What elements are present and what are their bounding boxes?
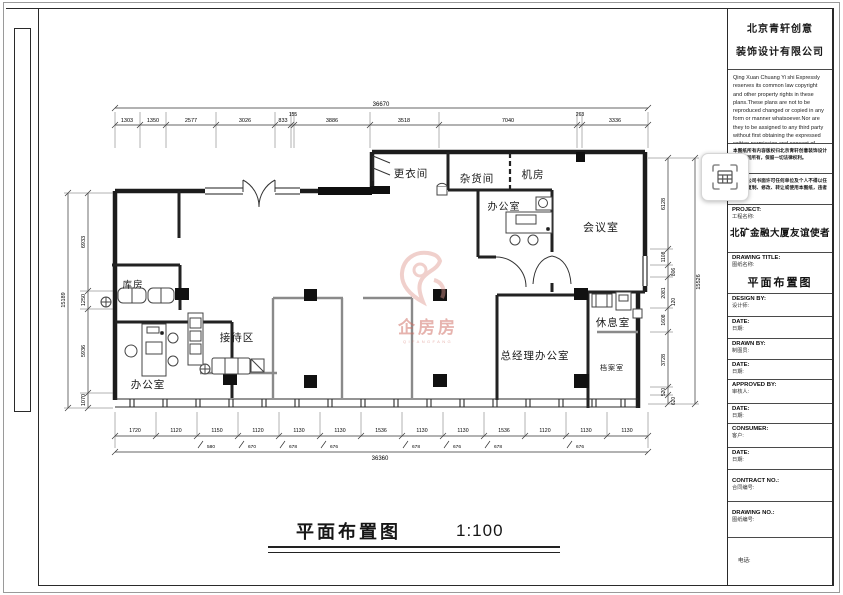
dim: 670 — [248, 444, 256, 450]
field-label-en: CONSUMER: — [728, 424, 832, 432]
field-label-zh: 日期: — [728, 456, 832, 463]
field-design-by: DESIGN BY: 设计师: — [728, 294, 832, 317]
dim: 833 — [278, 118, 287, 124]
bottom-window-band — [115, 399, 638, 407]
field-date-4: DATE: 日期: — [728, 448, 832, 470]
field-label-zh: 日期: — [728, 325, 832, 332]
dim-top-overall: 36670 — [373, 102, 390, 108]
field-drawing-no: DRAWING NO.: 图纸编号: — [728, 502, 832, 538]
dimension-values: 36670 1303 1350 2577 3026 833 155 3886 3… — [61, 102, 702, 462]
field-label-en: DESIGN BY: — [728, 294, 832, 302]
company-name-line1: 北京青轩创意 — [747, 20, 813, 35]
field-contract-no: CONTRACT NO.: 合同编号: — [728, 470, 832, 502]
dim-bottom-overall: 36360 — [372, 456, 389, 462]
field-label-en: DRAWN BY: — [728, 339, 832, 347]
field-drawing-title: DRAWING TITLE: 图纸名称: 平面布置图 — [728, 253, 832, 294]
field-date-1: DATE: 日期: — [728, 317, 832, 339]
dim: 1536 — [498, 428, 510, 434]
room-label: 档案室 — [600, 363, 624, 372]
dim: 5936 — [81, 345, 87, 357]
room-label: 会议室 — [583, 220, 619, 234]
company-name-block: 北京青轩创意 装饰设计有限公司 — [728, 8, 832, 70]
room-label: 办公室 — [488, 200, 521, 213]
furniture — [101, 183, 642, 376]
dim: 120 — [671, 298, 677, 307]
dim: 7040 — [502, 118, 514, 124]
dim: 620 — [671, 397, 677, 406]
dim: 1130 — [580, 428, 591, 434]
dim: 1120 — [539, 428, 550, 434]
dim: 676 — [330, 444, 338, 450]
dim: 6933 — [81, 236, 87, 248]
field-label-en: APPROVED BY: — [728, 380, 832, 388]
floor-plan-drawing: 更衣间 杂货间 机房 办公室 会议室 休息室 总经理办公室 档案室 接待区 库房… — [0, 0, 727, 595]
dim: 1608 — [661, 314, 667, 325]
sheet-inner-border-right — [833, 8, 834, 586]
dim: 1250 — [81, 294, 87, 306]
dim: 676 — [453, 444, 461, 450]
dim: 1120 — [252, 428, 263, 434]
dim: 806 — [671, 268, 677, 277]
field-label-zh: 图纸编号: — [728, 516, 832, 523]
dimension-lines — [64, 105, 699, 455]
field-label-zh: 工程名称: — [728, 213, 832, 220]
dim: 678 — [494, 444, 502, 450]
room-label: 休息室 — [596, 316, 631, 329]
dim: 676 — [576, 444, 584, 450]
company-name-line2: 装饰设计有限公司 — [736, 43, 824, 58]
field-phone: 电话: — [728, 538, 832, 585]
field-label-zh: 设计师: — [728, 302, 832, 309]
field-date-2: DATE: 日期: — [728, 360, 832, 380]
copyright-notice-en: Qing Xuan Chuang Yi shi Expressly reserv… — [728, 70, 832, 144]
dim: 1720 — [129, 428, 141, 434]
table-scan-icon — [710, 162, 740, 192]
room-label: 机房 — [522, 168, 545, 181]
dim-right-overall: 15526 — [696, 274, 702, 289]
caption-underline-1 — [268, 546, 560, 548]
top-wall-windows — [205, 188, 647, 286]
room-label: 杂货间 — [460, 172, 495, 185]
field-label-zh: 图纸名称: — [728, 261, 832, 268]
dim: 1130 — [416, 428, 427, 434]
room-label: 接待区 — [220, 331, 255, 344]
dim: 3886 — [326, 118, 338, 124]
dim: 678 — [412, 444, 420, 450]
drawing-scale: 1:100 — [456, 521, 504, 541]
dim: 2081 — [661, 287, 667, 298]
dim: 1350 — [147, 118, 159, 124]
room-label: 库房 — [122, 279, 143, 291]
dim: 1303 — [121, 118, 133, 124]
room-label: 办公室 — [131, 378, 166, 391]
wall-pier — [576, 152, 585, 162]
dim: 1150 — [211, 428, 222, 434]
field-label-zh: 客户: — [728, 432, 832, 439]
dim: 1070 — [81, 394, 87, 406]
top-wall-solid-band — [318, 187, 372, 195]
dim: 520 — [661, 388, 667, 397]
field-label-en: PROJECT: — [728, 205, 832, 213]
dim: 1536 — [375, 428, 387, 434]
field-label-en: DRAWING NO.: — [728, 502, 832, 516]
dim: 1130 — [293, 428, 304, 434]
field-drawn-by: DRAWN BY: 制图员: — [728, 339, 832, 360]
dim: 678 — [289, 444, 297, 450]
field-label-en: DATE: — [728, 448, 832, 456]
field-label-en: DATE: — [728, 317, 832, 325]
dim: 2577 — [185, 118, 197, 124]
dim: 1108 — [661, 251, 667, 262]
dim: 1130 — [621, 428, 632, 434]
field-label-zh: 日期: — [728, 368, 832, 375]
dim: 3336 — [609, 118, 621, 124]
dim: 580 — [207, 444, 215, 450]
caption-underline-2 — [268, 552, 560, 553]
field-label-zh: 制图员: — [728, 347, 832, 354]
dim: 3026 — [239, 118, 251, 124]
room-label: 总经理办公室 — [501, 349, 570, 362]
drawing-title-value: 平面布置图 — [728, 274, 832, 290]
partition-walls — [200, 298, 638, 398]
cad-sheet: 更衣间 杂货间 机房 办公室 会议室 休息室 总经理办公室 档案室 接待区 库房… — [0, 0, 843, 595]
dim: 6128 — [661, 198, 667, 210]
dim-left-overall: 15189 — [61, 292, 67, 307]
field-label-en: DATE: — [728, 404, 832, 412]
field-label-zh: 日期: — [728, 412, 832, 419]
dim: 263 — [576, 112, 585, 118]
dim: 1130 — [457, 428, 468, 434]
field-consumer: CONSUMER: 客户: — [728, 424, 832, 448]
project-name: 北矿金融大厦友谊使者 — [728, 225, 832, 239]
field-date-3: DATE: 日期: — [728, 404, 832, 424]
field-label-en: DATE: — [728, 360, 832, 368]
dim: 155 — [289, 112, 298, 118]
field-label-zh: 合同编号: — [728, 484, 832, 491]
drawing-caption: 平面布置图 — [296, 518, 401, 544]
room-label: 更衣间 — [394, 167, 429, 180]
field-project: PROJECT: 工程名称: 北矿金融大厦友谊使者 — [728, 205, 832, 253]
dim: 1130 — [334, 428, 345, 434]
field-approved-by: APPROVED BY: 审核人: — [728, 380, 832, 404]
dim: 3518 — [398, 118, 410, 124]
field-label-en: DRAWING TITLE: — [728, 253, 832, 261]
title-block: 北京青轩创意 装饰设计有限公司 Qing Xuan Chuang Yi shi … — [727, 8, 833, 585]
field-label-en: CONTRACT NO.: — [728, 470, 832, 484]
extract-table-overlay-button[interactable] — [701, 153, 749, 201]
vestibule-mat — [370, 186, 390, 194]
dim: 3728 — [661, 354, 667, 366]
field-label-zh: 审核人: — [728, 388, 832, 395]
dim: 1120 — [170, 428, 181, 434]
